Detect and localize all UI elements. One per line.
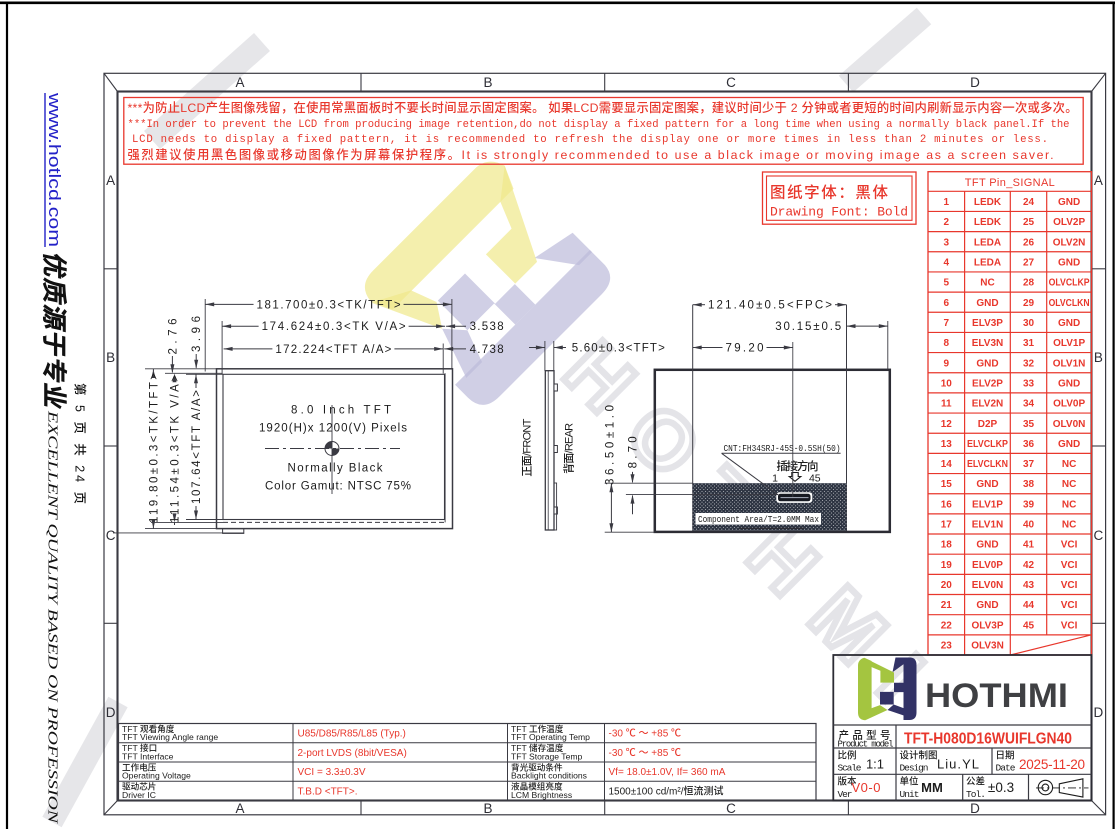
svg-text:31: 31 [1023,338,1035,349]
svg-text:1500±100 cd/m²/恒流测试: 1500±100 cd/m²/恒流测试 [609,782,724,797]
svg-text:优质源于专业: 优质源于专业 [38,250,74,414]
svg-text:21: 21 [941,600,953,611]
svg-text:1: 1 [772,472,778,484]
svg-text:38: 38 [1023,479,1035,490]
svg-text:13: 13 [941,439,953,450]
svg-text:28: 28 [1023,278,1035,289]
svg-text:B: B [483,75,492,90]
svg-text:34: 34 [1023,399,1035,410]
svg-text:A: A [235,75,244,90]
svg-text:TFT Operating Temp: TFT Operating Temp [511,732,590,742]
svg-text:D: D [970,801,980,816]
svg-text:A: A [1094,173,1103,188]
svg-text:D: D [1094,705,1104,720]
svg-text:比例: 比例 [838,748,857,762]
svg-text:16: 16 [941,499,953,510]
svg-text:LEDA: LEDA [974,237,1001,248]
svg-text:OLV3N: OLV3N [971,641,1004,652]
svg-text:OLV0P: OLV0P [1053,399,1085,410]
svg-text:OLV1N: OLV1N [1053,358,1086,369]
svg-text:Normally Black: Normally Black [288,460,383,476]
svg-text:4.738: 4.738 [470,341,504,357]
svg-text:ELVCLKP: ELVCLKP [967,439,1008,450]
svg-text:D2P: D2P [978,419,998,430]
svg-text:TFT Viewing Angle range: TFT Viewing Angle range [122,732,218,742]
svg-text:T.B.D <TFT>.: T.B.D <TFT>. [298,782,358,797]
svg-text:32: 32 [1023,358,1035,369]
svg-text:45: 45 [809,472,821,484]
svg-text:EXCELLENT QUALITY BASED ON PRO: EXCELLENT QUALITY BASED ON PROFESSION [45,410,60,824]
svg-text:OLV1P: OLV1P [1053,338,1085,349]
svg-text:HOTHMI: HOTHMI [925,677,1068,715]
svg-text:4: 4 [944,257,950,268]
svg-text:GND: GND [976,358,998,369]
svg-text:背面/REAR: 背面/REAR [560,423,576,474]
svg-text:35: 35 [1023,419,1035,430]
svg-text:V0-0: V0-0 [852,777,881,796]
svg-text:2025-11-20: 2025-11-20 [1019,753,1085,773]
svg-text:9: 9 [944,358,950,369]
svg-text:ELVCLKN: ELVCLKN [967,459,1008,470]
svg-text:30.15±0.5: 30.15±0.5 [775,318,841,334]
svg-text:119.80±0.3<TK/TFT>: 119.80±0.3<TK/TFT> [145,373,161,523]
svg-text:TFT-H080D16WUIFLGN40: TFT-H080D16WUIFLGN40 [904,731,1072,748]
svg-text:第 5 页 共 24 页: 第 5 页 共 24 页 [72,383,91,504]
svg-text:强烈建议使用黑色图像或移动图像作为屏幕保护程序。It is: 强烈建议使用黑色图像或移动图像作为屏幕保护程序。It is strongly r… [128,145,1054,163]
svg-text:GND: GND [976,479,998,490]
svg-text:C: C [726,75,736,90]
svg-text:41: 41 [1023,540,1035,551]
svg-text:121.40±0.5<FPC>: 121.40±0.5<FPC> [708,297,832,313]
svg-text:79.20: 79.20 [726,339,764,355]
svg-text:181.700±0.3<TK/TFT>: 181.700±0.3<TK/TFT> [257,296,401,312]
svg-text:OLV0N: OLV0N [1053,419,1086,430]
svg-text:5: 5 [944,278,950,289]
svg-text:OLVCLKN: OLVCLKN [1049,298,1090,309]
svg-text:单位: 单位 [900,774,920,788]
svg-text:A: A [235,801,244,816]
svg-text:Driver IC: Driver IC [122,790,156,800]
svg-text:C: C [1094,528,1104,543]
svg-text:1920(H)x 1200(V) Pixels: 1920(H)x 1200(V) Pixels [259,419,407,435]
svg-text:***In order to prevent the LCD: ***In order to prevent the LCD from prod… [128,119,1070,131]
svg-text:日期: 日期 [996,748,1015,762]
svg-text:CNT:FH34SRJ-45S-0.5SH(50): CNT:FH34SRJ-45S-0.5SH(50) [724,443,841,454]
svg-text:OLV2P: OLV2P [1053,217,1085,228]
svg-text:Design: Design [900,763,929,774]
svg-text:36: 36 [1023,439,1035,450]
svg-text:TFT Storage Temp: TFT Storage Temp [511,751,583,761]
svg-text:43: 43 [1023,580,1035,591]
svg-text:3: 3 [944,237,950,248]
svg-text:ELV2P: ELV2P [972,378,1003,389]
svg-text:LEDK: LEDK [974,217,1002,228]
svg-text:39: 39 [1023,499,1035,510]
svg-text:LEDA: LEDA [974,257,1001,268]
svg-text:NC: NC [980,278,994,289]
svg-text:23: 23 [941,641,953,652]
svg-text:www.hotlcd.com: www.hotlcd.com [45,92,64,247]
svg-text:正面/FRONT: 正面/FRONT [518,418,534,476]
svg-text:VCI: VCI [1061,620,1078,631]
svg-text:3.96: 3.96 [188,316,204,352]
svg-text:GND: GND [1058,378,1080,389]
svg-text:Drawing Font: Bold: Drawing Font: Bold [770,205,908,220]
svg-text:42: 42 [1023,560,1035,571]
svg-text:6: 6 [944,298,950,309]
svg-text:***为防止LCD产生图像残留，在使用常黑面板时不要长时间显: ***为防止LCD产生图像残留，在使用常黑面板时不要长时间显示固定图案。 如果L… [128,98,1078,116]
svg-text:B: B [483,801,492,816]
svg-text:1:1: 1:1 [866,754,884,773]
svg-text:GND: GND [1058,318,1080,329]
svg-text:D: D [106,705,116,720]
svg-text:±0.3: ±0.3 [988,776,1014,796]
svg-text:B: B [106,350,115,365]
svg-text:25: 25 [1023,217,1035,228]
svg-text:2.76: 2.76 [164,319,180,355]
svg-text:C: C [106,528,116,543]
svg-text:TFT Interface: TFT Interface [122,751,174,761]
svg-text:OLVCLKP: OLVCLKP [1049,278,1090,289]
svg-text:GND: GND [976,298,998,309]
svg-text:图纸字体：黑体: 图纸字体：黑体 [770,181,888,203]
svg-text:15: 15 [941,479,953,490]
svg-text:LCM Brightness: LCM Brightness [511,790,572,800]
svg-text:36.50±1.0: 36.50±1.0 [601,405,617,485]
svg-text:D: D [970,75,980,90]
svg-text:ELV1N: ELV1N [972,520,1004,531]
svg-text:GND: GND [1058,439,1080,450]
svg-text:20: 20 [941,580,953,591]
svg-text:公差: 公差 [966,774,985,788]
svg-text:GND: GND [976,540,998,551]
svg-text:172.224<TFT A/A>: 172.224<TFT A/A> [275,341,391,357]
svg-text:11: 11 [941,399,952,410]
svg-text:-30 ℃ ～ +85 ℃: -30 ℃ ～ +85 ℃ [609,744,682,759]
svg-text:设计制图: 设计制图 [900,748,938,762]
svg-text:14: 14 [941,459,953,470]
svg-text:2: 2 [944,217,950,228]
svg-text:29: 29 [1023,298,1035,309]
svg-text:ELV0P: ELV0P [972,560,1003,571]
svg-text:NC: NC [1062,499,1076,510]
svg-text:ELV2N: ELV2N [972,399,1004,410]
svg-text:7: 7 [944,318,950,329]
svg-text:22: 22 [941,620,953,631]
svg-text:Vf= 18.0±1.0V, If= 360 mA: Vf= 18.0±1.0V, If= 360 mA [609,763,726,778]
svg-text:MM: MM [921,777,943,796]
svg-text:GND: GND [976,600,998,611]
svg-text:18: 18 [941,540,953,551]
svg-text:1: 1 [944,197,950,208]
svg-text:Operating Voltage: Operating Voltage [122,771,191,781]
svg-text:GND: GND [1058,257,1080,268]
svg-text:Liu.YL: Liu.YL [937,754,979,773]
svg-text:3.538: 3.538 [470,318,504,334]
svg-text:VCI: VCI [1061,560,1078,571]
svg-text:107.64<TFT A/A>: 107.64<TFT A/A> [188,390,204,504]
svg-text:ELV3P: ELV3P [972,318,1003,329]
svg-text:Color Gamut: NTSC 75%: Color Gamut: NTSC 75% [265,478,411,494]
svg-text:-30 ℃ ～ +85 ℃: -30 ℃ ～ +85 ℃ [609,725,682,740]
svg-text:NC: NC [1062,479,1076,490]
svg-text:45: 45 [1023,620,1035,631]
svg-text:OLV2N: OLV2N [1053,237,1086,248]
svg-text:Backlight conditions: Backlight conditions [511,771,587,781]
svg-text:NC: NC [1062,459,1076,470]
svg-text:OLV3P: OLV3P [971,620,1003,631]
svg-text:A: A [106,173,115,188]
svg-text:C: C [726,801,736,816]
svg-text:44: 44 [1023,600,1035,611]
svg-text:B: B [1094,350,1103,365]
svg-text:U85/D85/R85/L85 (Typ.): U85/D85/R85/L85 (Typ.) [298,725,406,740]
svg-text:Scale: Scale [838,763,862,774]
svg-text:12: 12 [941,419,953,430]
svg-text:40: 40 [1023,520,1035,531]
svg-text:10: 10 [941,378,953,389]
svg-text:VCI: VCI [1061,540,1078,551]
svg-text:37: 37 [1023,459,1035,470]
svg-text:Unit: Unit [900,789,920,800]
svg-text:8: 8 [944,338,950,349]
svg-text:TFT Pin_SIGNAL: TFT Pin_SIGNAL [965,177,1055,189]
svg-text:19: 19 [941,560,953,571]
svg-text:30: 30 [1023,318,1035,329]
svg-text:24: 24 [1023,197,1035,208]
svg-text:111.54±0.3<TK V/A>: 111.54±0.3<TK V/A> [167,375,183,523]
svg-text:8.70: 8.70 [625,436,641,468]
svg-text:Ver: Ver [838,789,853,800]
svg-text:GND: GND [1058,197,1080,208]
svg-text:8.0 Inch TFT: 8.0 Inch TFT [291,401,391,417]
svg-text:Date: Date [996,763,1016,774]
svg-text:26: 26 [1023,237,1035,248]
svg-text:ELV1P: ELV1P [972,499,1003,510]
svg-text:NC: NC [1062,520,1076,531]
svg-text:VCI = 3.3±0.3V: VCI = 3.3±0.3V [298,763,366,778]
svg-text:174.624±0.3<TK V/A>: 174.624±0.3<TK V/A> [262,318,406,334]
svg-text:Tol.: Tol. [966,789,986,800]
svg-text:Component Area/T=2.0MM Max: Component Area/T=2.0MM Max [698,514,819,525]
svg-text:2-port LVDS (8bit/VESA): 2-port LVDS (8bit/VESA) [298,744,407,759]
svg-text:VCI: VCI [1061,600,1078,611]
svg-text:27: 27 [1023,257,1035,268]
svg-text:VCI: VCI [1061,580,1078,591]
svg-text:17: 17 [941,520,953,531]
svg-text:ELV0N: ELV0N [972,580,1004,591]
svg-text:ELV3N: ELV3N [972,338,1004,349]
svg-text:LEDK: LEDK [974,197,1002,208]
svg-text:5.60±0.3<TFT>: 5.60±0.3<TFT> [572,339,665,355]
svg-text:33: 33 [1023,378,1035,389]
